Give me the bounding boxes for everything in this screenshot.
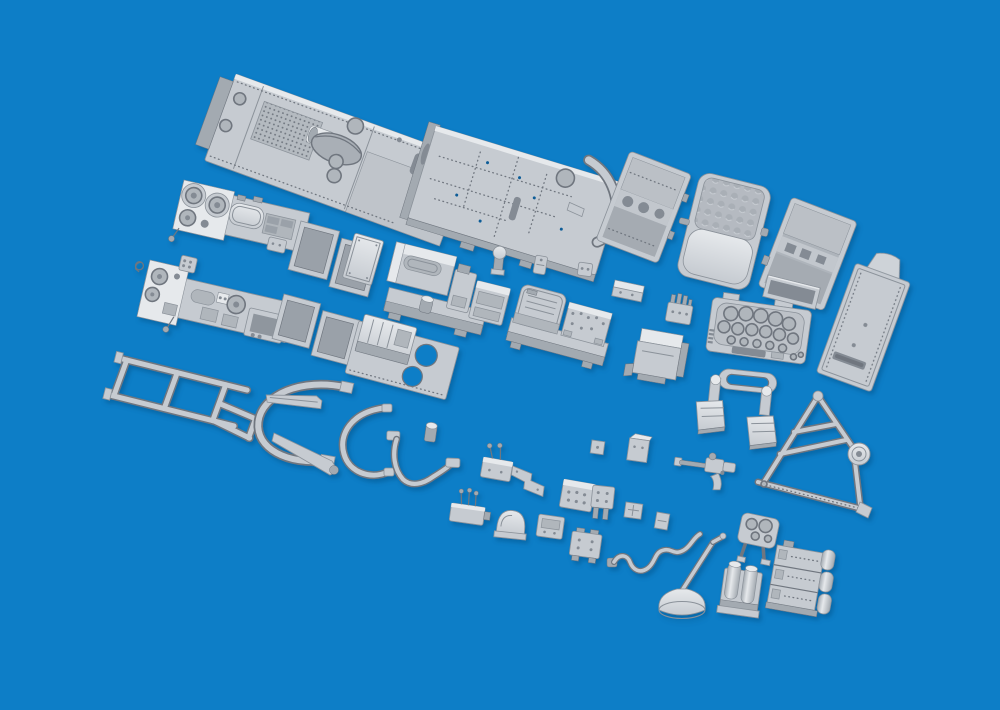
small-plate — [624, 502, 643, 519]
equipment-box — [623, 327, 690, 387]
oxygen-hose — [607, 534, 700, 571]
dome-fairing — [494, 509, 529, 540]
shelf-small — [612, 280, 645, 302]
tiny-box-b — [577, 262, 593, 277]
ladder-frame — [102, 351, 264, 439]
stud-box — [559, 479, 595, 512]
connector-legs — [590, 485, 615, 520]
arc-frame-small — [343, 404, 394, 476]
tiny-box-a — [533, 255, 548, 275]
y-tube — [385, 431, 461, 485]
detail-box-c — [568, 527, 602, 564]
twin-cylinder-box — [717, 560, 766, 618]
angle-bracket — [509, 466, 546, 496]
tiny-box-c — [590, 440, 605, 455]
a-frame-truss — [758, 391, 872, 518]
small-canister — [424, 422, 438, 443]
seat-bucket-left — [596, 151, 696, 265]
compass-panel — [733, 512, 780, 568]
radio-rack — [504, 283, 617, 372]
tall-box — [627, 433, 653, 463]
lever-quadrant-a — [480, 441, 516, 482]
flexible-drive — [671, 448, 736, 493]
tiny-box-d — [654, 512, 670, 530]
rudder-pedals — [692, 366, 784, 452]
cockpit-parts-render — [0, 0, 1000, 710]
detail-box-b — [536, 514, 565, 539]
product-render-stage — [0, 0, 1000, 710]
frame-trays-lower — [271, 294, 362, 365]
lever-quadrant-b — [449, 486, 494, 526]
ammo-box-stack — [765, 539, 840, 619]
connector-pins — [665, 292, 695, 325]
